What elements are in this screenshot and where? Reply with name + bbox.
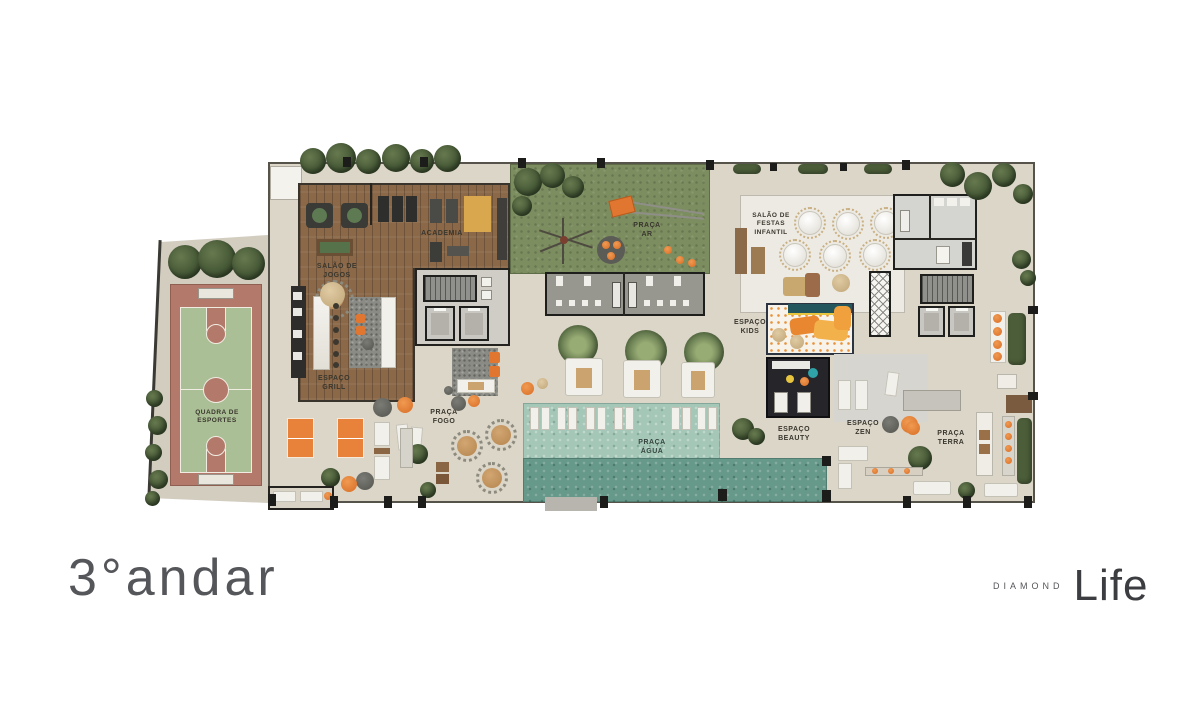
gym-machine [430, 199, 442, 223]
planter [997, 374, 1017, 389]
fixture [556, 276, 563, 286]
play-cone [664, 246, 672, 254]
in-pool-lounger [625, 407, 634, 430]
elevator-car [924, 313, 939, 331]
planter-wood [979, 430, 990, 440]
court-key-bottom-circle [206, 436, 226, 456]
bar-stool [333, 303, 339, 309]
armchair [489, 352, 500, 363]
pool-lap-lane [523, 458, 827, 502]
elevator-door [956, 308, 968, 311]
pouf [341, 476, 357, 492]
in-pool-lounger [541, 407, 550, 430]
treadmill [392, 196, 403, 222]
sofa [400, 428, 413, 468]
cabana-mattress [576, 368, 592, 388]
area-label-quadra-de-esportes: QUADRA DE ESPORTES [190, 409, 244, 426]
beauty-stool [786, 375, 794, 383]
area-label-praca-agua: PRAÇA ÁGUA [632, 438, 672, 456]
tree-icon [1020, 270, 1036, 286]
column [902, 160, 910, 170]
hedge-icon [864, 164, 892, 174]
column [963, 496, 971, 508]
bar-counter [313, 296, 330, 370]
weight-bench [447, 246, 469, 256]
gym-mat [464, 196, 491, 232]
pouf [537, 378, 548, 389]
tree-icon [145, 444, 162, 461]
column [268, 494, 276, 506]
column [384, 496, 392, 508]
fixture [584, 276, 591, 286]
cushion [904, 468, 910, 474]
tree-icon [562, 176, 584, 198]
wall [893, 238, 977, 240]
massage-lounger [855, 380, 868, 410]
armchair [356, 326, 365, 335]
appliance [293, 292, 302, 300]
tree-icon [992, 163, 1016, 187]
play-cone [688, 259, 696, 267]
tree-icon [148, 416, 167, 435]
elevator-car [465, 313, 483, 335]
column [420, 157, 428, 167]
salon-chair [774, 392, 788, 413]
appliance [960, 198, 970, 206]
dining-table-top [482, 468, 502, 488]
appliance [293, 308, 302, 316]
sofa [903, 390, 961, 411]
tree-icon [149, 470, 168, 489]
game-table-top [347, 208, 362, 223]
plant-orange [1005, 445, 1012, 452]
column [822, 490, 831, 502]
treadmill [378, 196, 389, 222]
area-label-praca-terra: PRAÇA TERRA [929, 429, 973, 447]
bar-stool [333, 315, 339, 321]
in-pool-lounger [682, 407, 691, 430]
cabana-mattress [691, 371, 705, 390]
hedge-icon [1017, 418, 1032, 484]
wall [370, 183, 372, 225]
area-label-espaco-beauty: ESPAÇO BEAUTY [770, 425, 818, 443]
cushion [993, 327, 1002, 336]
fixture [674, 276, 681, 286]
appliance [947, 198, 957, 206]
in-pool-lounger [697, 407, 706, 430]
beauty-stool [808, 368, 818, 378]
column [1028, 306, 1038, 314]
kids-table [751, 247, 765, 274]
wall [929, 194, 931, 240]
column [1028, 392, 1038, 400]
pouf [468, 395, 480, 407]
court-center-circle [203, 377, 229, 403]
column [418, 496, 426, 508]
area-label-salao-de-festas-infantil: SALÃO DE FESTAS INFANTIL [748, 212, 794, 237]
net-hub [560, 236, 568, 244]
play-cone [676, 256, 684, 264]
tree-icon [198, 240, 236, 278]
sofa [381, 297, 396, 368]
cushion [993, 352, 1002, 361]
column [718, 489, 727, 501]
column [600, 496, 608, 508]
kitchen-island [936, 246, 950, 264]
elevator-door [434, 308, 446, 311]
play-dot [602, 241, 610, 249]
tree-icon [1013, 184, 1033, 204]
appliance [293, 330, 302, 338]
tree-icon [434, 145, 461, 172]
hedge-icon [1008, 313, 1026, 365]
in-pool-lounger [671, 407, 680, 430]
in-pool-lounger [597, 407, 606, 430]
column [903, 496, 911, 508]
column [706, 160, 714, 170]
bean-bag [772, 328, 786, 342]
tree-icon [748, 428, 765, 445]
tree-icon [326, 143, 356, 173]
dining-table [451, 430, 483, 462]
brand-prefix: DIAMOND [993, 581, 1064, 591]
fixture [670, 300, 676, 306]
brand-name: Life [1074, 564, 1149, 608]
sun-lounger [374, 456, 390, 480]
treadmill [406, 196, 417, 222]
tree-icon [321, 468, 340, 487]
pouf [521, 382, 534, 395]
column [770, 163, 777, 171]
party-table-top [798, 211, 822, 235]
beauty-stool [800, 377, 809, 386]
bar-stool [333, 362, 339, 368]
appliance [293, 352, 302, 360]
pouf [906, 421, 920, 435]
fixture [481, 277, 492, 287]
fixture [595, 300, 601, 306]
coffee-table [362, 338, 374, 350]
tree-icon [382, 144, 410, 172]
hedge-icon [798, 164, 828, 174]
plant-orange [1005, 457, 1012, 464]
rug [832, 274, 850, 292]
court-key-top-circle [206, 324, 226, 344]
ping-pong-table [287, 418, 314, 458]
pouf [397, 397, 413, 413]
planter-wood [979, 444, 990, 454]
gym-machine [446, 199, 458, 223]
fixture [556, 300, 562, 306]
bench [735, 228, 747, 274]
dining-table-top [491, 425, 511, 445]
in-pool-lounger [614, 407, 623, 430]
fixture [646, 276, 653, 286]
game-table-top [312, 208, 327, 223]
party-table-top [823, 244, 847, 268]
party-table-top [863, 243, 887, 267]
area-label-espaco-kids: ESPAÇO KIDS [730, 318, 770, 336]
bean-bag [790, 335, 804, 349]
side-table [374, 448, 390, 454]
pouf [444, 386, 453, 395]
restrooms [545, 272, 705, 316]
elevator [459, 306, 489, 341]
wood-crate [436, 474, 449, 484]
party-table [832, 208, 864, 240]
pouf [451, 396, 466, 411]
sun-lounger [374, 422, 390, 446]
elevator [918, 306, 945, 337]
cushion [993, 340, 1002, 349]
in-pool-lounger [568, 407, 577, 430]
in-pool-lounger [708, 407, 717, 430]
party-table-top [836, 212, 860, 236]
in-pool-lounger [586, 407, 595, 430]
basketball-backboard [198, 474, 234, 485]
elevator-car [954, 313, 969, 331]
armchair [489, 366, 500, 377]
elevator-car [431, 313, 449, 335]
dining-table-top [457, 436, 477, 456]
fixture [481, 290, 492, 300]
fixture [683, 300, 689, 306]
wall [623, 272, 625, 316]
party-table [794, 207, 826, 239]
tree-icon [512, 196, 532, 216]
salon-chair [797, 392, 811, 413]
column [822, 456, 831, 466]
elevator-door [926, 308, 938, 311]
elevator [425, 306, 455, 341]
pouf [373, 398, 392, 417]
column [840, 163, 847, 171]
area-label-salao-de-jogos: SALÃO DE JOGOS [312, 262, 362, 280]
pool-step [545, 497, 597, 511]
tree-icon [964, 172, 992, 200]
plant-orange [1005, 433, 1012, 440]
party-table [859, 239, 891, 271]
counter [900, 210, 910, 232]
bar-stool [333, 351, 339, 357]
sofa [838, 463, 852, 489]
party-table-top [783, 243, 807, 267]
play-blob [834, 306, 851, 330]
tree-icon [145, 491, 160, 506]
brand-logo: DIAMOND Life [993, 558, 1148, 614]
in-pool-lounger [557, 407, 566, 430]
party-table [779, 239, 811, 271]
column [330, 496, 338, 508]
sofa [984, 483, 1018, 497]
stairs [920, 274, 974, 304]
column [343, 157, 351, 167]
area-label-espaco-grill: ESPAÇO GRILL [308, 374, 360, 392]
column [597, 158, 605, 168]
column [1024, 496, 1032, 508]
fixture [582, 300, 588, 306]
pouf [356, 472, 374, 490]
daybed-mattress [468, 382, 484, 390]
fixture [657, 300, 663, 306]
cushion [872, 468, 878, 474]
exercise-bike [430, 242, 442, 262]
tree-icon [1012, 250, 1031, 269]
tree-icon [168, 245, 202, 279]
area-label-academia: ACADEMIA [416, 229, 468, 238]
stairs [423, 275, 477, 302]
dining-table [476, 462, 508, 494]
party-table [819, 240, 851, 272]
counter [962, 242, 972, 266]
page-title: 3°andar [68, 548, 279, 608]
dining-table [485, 419, 517, 451]
sofa [838, 446, 868, 461]
sofa [805, 273, 820, 297]
play-dot [613, 241, 621, 249]
dumbbell-rack [497, 198, 507, 260]
service-shaft [869, 271, 891, 337]
bar-stool [333, 339, 339, 345]
armchair [356, 314, 365, 323]
tree-icon [300, 148, 326, 174]
tree-icon [514, 168, 542, 196]
pool-table [317, 239, 353, 256]
shower [628, 282, 637, 308]
tree-icon [146, 390, 163, 407]
massage-lounger [838, 380, 851, 410]
column [518, 158, 526, 168]
beauty-counter [772, 361, 810, 369]
wood-crate [436, 462, 449, 472]
cushion [993, 314, 1002, 323]
plant-orange [1005, 421, 1012, 428]
cushion [888, 468, 894, 474]
sun-lounger [273, 491, 296, 502]
fixture [644, 300, 650, 306]
area-label-espaco-zen: ESPAÇO ZEN [843, 419, 883, 437]
basketball-backboard [198, 288, 234, 299]
cabana-mattress [634, 370, 650, 390]
floorplan-page: QUADRA DE ESPORTES SALÃO DE JOGOS ACADEM… [0, 0, 1200, 704]
tree-icon [940, 162, 965, 187]
appliance [934, 198, 944, 206]
sofa [913, 481, 951, 495]
tree-icon [232, 247, 265, 280]
hedge-icon [733, 164, 761, 174]
elevator [948, 306, 975, 337]
play-dot [607, 252, 615, 260]
lounge-rug [349, 297, 381, 368]
area-label-praca-ar: PRAÇA AR [627, 221, 667, 239]
sun-lounger [300, 491, 323, 502]
shower [612, 282, 621, 308]
round-rug [320, 282, 345, 307]
tree-icon [356, 149, 381, 174]
in-pool-lounger [530, 407, 539, 430]
ping-pong-table [337, 418, 364, 458]
pouf [882, 416, 899, 433]
elevator-door [468, 308, 480, 311]
fixture [569, 300, 575, 306]
bar-stool [333, 327, 339, 333]
